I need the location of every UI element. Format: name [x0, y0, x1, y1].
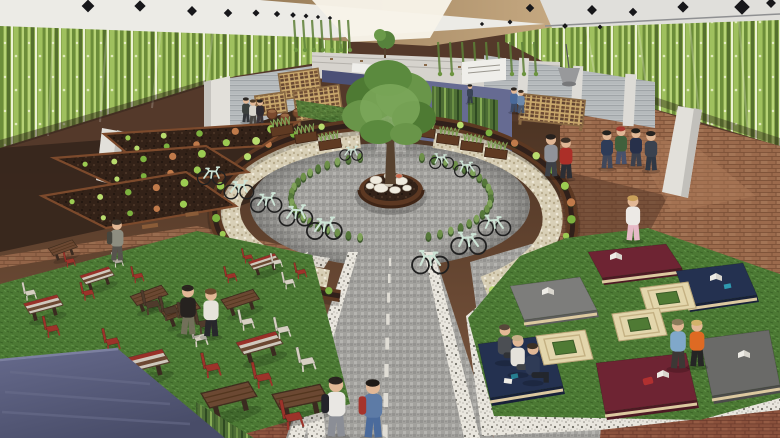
person-torso [626, 207, 640, 226]
pallet-table-plant [656, 291, 680, 304]
person-hair [511, 87, 517, 90]
lettuce [153, 184, 160, 191]
lettuce [111, 159, 117, 165]
person-hair [631, 128, 640, 133]
lettuce [532, 152, 539, 159]
person-hair [616, 126, 625, 131]
lane-dash [389, 258, 391, 266]
person-legs [544, 372, 549, 383]
person-hair [691, 320, 702, 326]
plant-strand [321, 48, 325, 52]
lane-dash [385, 338, 389, 350]
person-torso [517, 96, 524, 106]
person-shadow [598, 166, 616, 171]
hedge-tuft [346, 231, 351, 239]
hedge-tuft [426, 232, 431, 240]
person-torso [630, 138, 642, 154]
lettuce [127, 210, 133, 216]
hedge-tuft [467, 219, 472, 227]
person-torso [601, 140, 613, 156]
person-torso [203, 300, 218, 320]
person-shadow [466, 102, 475, 105]
lettuce [125, 189, 132, 196]
scene-canvas: Architectural rendering of an indoor mar… [0, 0, 780, 438]
plant-strand [438, 72, 442, 76]
person-hair [250, 99, 256, 102]
lane-dash [383, 393, 388, 407]
person-hair [205, 288, 217, 294]
lettuce [134, 146, 139, 151]
person-hair [243, 97, 249, 100]
lettuce [567, 215, 575, 223]
crate-leg [579, 126, 583, 131]
person-hair [112, 220, 122, 225]
person-torso [498, 337, 512, 355]
person-hair [546, 134, 556, 140]
hedge-tuft [474, 215, 479, 223]
barrel-top [281, 114, 289, 117]
person-hair [518, 90, 524, 93]
person-shadow [642, 168, 660, 173]
person-hair [527, 343, 538, 349]
person-torso [645, 141, 657, 157]
person-shadow [200, 334, 222, 341]
hedge-tuft [458, 223, 463, 231]
person-torso [364, 394, 382, 418]
lettuce [252, 137, 260, 145]
person-torso [526, 356, 540, 375]
lane-dash [388, 274, 391, 283]
stone [390, 187, 401, 194]
lettuce [169, 153, 176, 160]
pallet-table-plant [628, 318, 651, 332]
plant-strand [294, 48, 298, 52]
person-leg [514, 103, 518, 112]
back-tree [374, 29, 386, 41]
stone [366, 183, 374, 189]
person-hair [182, 285, 194, 291]
lane-dash [384, 364, 388, 377]
person-hair [561, 138, 571, 143]
stone [396, 174, 403, 178]
person-shadow [176, 332, 199, 339]
person-torso [242, 104, 250, 114]
person-torso [327, 392, 346, 417]
person-shadow [522, 380, 543, 386]
hedge-tuft [448, 227, 453, 235]
plant-strand [348, 48, 352, 52]
plant-strand [339, 48, 343, 52]
backpack [107, 231, 112, 244]
lettuce [318, 124, 324, 130]
lettuce [486, 129, 493, 136]
lettuce [244, 153, 251, 160]
lettuce [511, 140, 518, 147]
person-torso [544, 145, 557, 162]
person-shadow [686, 364, 708, 370]
crate-leg [518, 120, 522, 125]
stone [403, 185, 412, 191]
person-torso [249, 106, 257, 116]
person-hair [468, 84, 473, 86]
person-torso [670, 331, 686, 351]
person-hair [366, 379, 380, 387]
lettuce [457, 122, 464, 129]
plant-strand [510, 72, 514, 76]
person-shadow [622, 238, 643, 244]
lettuce [196, 130, 203, 137]
lettuce [83, 162, 88, 167]
person-hair [328, 377, 342, 385]
person-torso [511, 348, 525, 367]
market-hall-rendering: Architectural rendering of an indoor mar… [0, 0, 780, 438]
plant-strand [522, 72, 526, 76]
lettuce [101, 215, 106, 220]
lettuce [125, 135, 130, 140]
hedge-tuft [480, 210, 485, 218]
stone [370, 176, 382, 184]
hedge-tuft [357, 233, 362, 241]
pallet-table-plant [553, 340, 577, 355]
lettuce [325, 287, 332, 294]
person-shadow [516, 112, 527, 115]
backpack [321, 394, 329, 413]
person-hair [646, 131, 655, 136]
person-torso [467, 89, 473, 97]
person-shadow [556, 176, 575, 182]
person-shadow [627, 164, 645, 169]
lettuce [232, 128, 239, 135]
person-hair [672, 319, 684, 325]
hedge-tuft [316, 164, 321, 172]
lettuce [181, 179, 189, 187]
lettuce [153, 205, 160, 212]
person-torso [510, 94, 518, 104]
person-torso [256, 106, 264, 116]
lettuce [180, 201, 187, 208]
lettuce [567, 198, 575, 206]
lane-dash [387, 293, 390, 303]
hedge-tuft [335, 228, 340, 236]
lane-dash [386, 314, 389, 325]
daybed-cushion [700, 330, 780, 396]
hedge-tuft [419, 153, 424, 161]
person-hair [602, 130, 611, 135]
hedge-tuft [437, 230, 442, 238]
lettuce [198, 150, 206, 158]
hedge-tuft [325, 161, 330, 169]
lettuce [161, 133, 167, 139]
person-shadow [666, 366, 689, 373]
person-hair [257, 99, 263, 102]
lettuce [561, 182, 569, 190]
person-hair [499, 324, 510, 330]
person-torso [690, 331, 705, 350]
hedge-tuft [484, 205, 489, 213]
hedge-tuft [301, 173, 306, 181]
lettuce [212, 214, 220, 222]
pendant-lamp-rim [562, 82, 576, 87]
person-shadow [507, 372, 528, 378]
hedge-tuft [307, 168, 312, 176]
backpack [359, 396, 367, 414]
lettuce [69, 199, 74, 204]
lettuce [114, 176, 119, 181]
plant-strand [330, 48, 334, 52]
person-hair [512, 335, 523, 341]
lettuce [97, 194, 103, 200]
plant-strand [303, 48, 307, 52]
person-hair [627, 195, 638, 201]
barrel-top [268, 110, 276, 113]
person-torso [111, 230, 124, 247]
hedge-tuft [477, 173, 482, 181]
person-torso [180, 297, 196, 317]
plant-strand [534, 72, 538, 76]
lettuce [140, 156, 147, 163]
person-torso [615, 136, 627, 152]
lettuce [223, 139, 230, 146]
person-torso [560, 148, 573, 165]
hedge-tuft [335, 158, 340, 166]
plant-strand [450, 72, 454, 76]
plant-strand [312, 48, 316, 52]
person-shadow [107, 258, 126, 264]
